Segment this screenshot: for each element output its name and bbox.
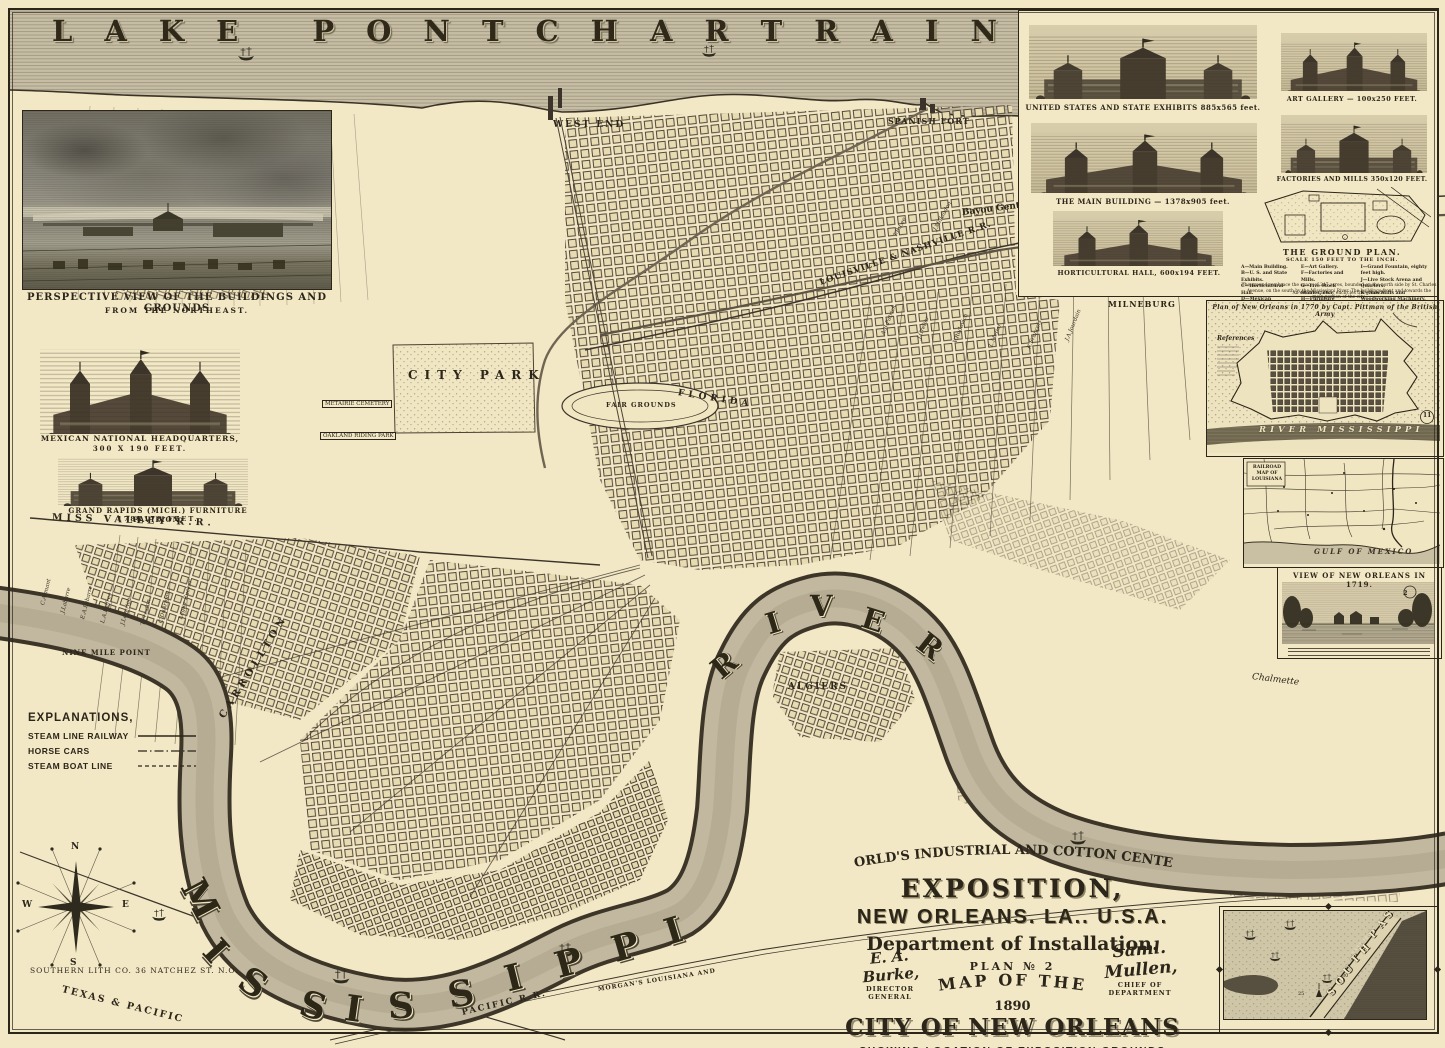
view-1719-art <box>1282 582 1434 644</box>
title-new-orleans-usa: NEW ORLEANS. LA.. U.S.A. <box>840 906 1185 929</box>
signature-director-general: E. A. Burke, DIRECTOR GENERAL <box>845 948 935 1001</box>
engraving-factories-mills <box>1281 115 1427 173</box>
signature-left-role: DIRECTOR GENERAL <box>845 985 935 1001</box>
title-map-of-the: MAP OF THE <box>937 973 1088 995</box>
inset-plan-1770: Plan of New Orleans in 1770 by Capt. Pit… <box>1206 300 1444 457</box>
engraving-us-state-exhibits <box>1029 25 1257 99</box>
view-1719-badge: 2 <box>1403 589 1408 597</box>
signature-right-name: Saml. Mullen, <box>1083 935 1196 984</box>
ground-plan-drawing <box>1259 187 1431 245</box>
label-city-park: CITY PARK <box>408 368 546 382</box>
legend-label: HORSE CARS <box>28 746 136 756</box>
ground-plan-title: THE GROUND PLAN. <box>1247 247 1437 257</box>
legend-explanations: EXPLANATIONS, STEAM LINE RAILWAY HORSE C… <box>28 712 198 773</box>
legend-label: STEAM BOAT LINE <box>28 761 136 771</box>
svg-text:MAP OF THE: MAP OF THE <box>937 973 1088 995</box>
inset-exhibit-panel: UNITED STATES AND STATE EXHIBITS 885x565… <box>1018 10 1439 297</box>
south-pass-depth-b: 25 <box>1298 991 1304 997</box>
engraving-horticultural-hall <box>1053 211 1223 266</box>
legend-row-steam-railway: STEAM LINE RAILWAY <box>28 728 198 743</box>
title-city-of-new-orleans: CITY OF NEW ORLEANS <box>840 1014 1185 1041</box>
perspective-engraving <box>22 110 332 290</box>
label-milneburg: MILNEBURG <box>1108 299 1176 309</box>
caption-factories-mills: FACTORIES AND MILLS 350x120 FEET. <box>1269 176 1435 183</box>
label-metairie-cemetery: METAIRIE CEMETERY <box>322 400 392 408</box>
mexican-hq-caption-line1: MEXICAN NATIONAL HEADQUARTERS, <box>40 434 240 443</box>
engraving-main-building <box>1031 123 1257 193</box>
inset-south-pass: SOUTH PASS EAST JETTY 30 25 <box>1219 906 1438 1033</box>
engraving-art-gallery <box>1281 33 1427 91</box>
legend-line-dash-dot <box>136 747 198 755</box>
caption-us-state-exhibits: UNITED STATES AND STATE EXHIBITS 885x565… <box>1019 103 1267 112</box>
title-exposition: EXPOSITION, <box>840 874 1185 903</box>
label-west-end: WEST END <box>553 120 625 130</box>
inset-grand-rapids: GRAND RAPIDS (MICH.) FURNITURE PAVILION,… <box>58 450 258 530</box>
compass-w: W <box>22 900 32 910</box>
svg-text:THE WORLD'S INDUSTRIAL AND COT: THE WORLD'S INDUSTRIAL AND COTTON CENTEN… <box>840 838 1174 871</box>
legend-row-steam-boat: STEAM BOAT LINE <box>28 758 198 773</box>
perspective-art <box>23 111 331 289</box>
inset-view-1719: VIEW OF NEW ORLEANS IN 1719. 2 <box>1277 567 1442 659</box>
south-pass-art <box>1224 911 1426 1019</box>
label-oakland-riding-park: OAKLAND RIDING PARK <box>320 432 396 440</box>
grand-rapids-engraving <box>58 450 248 506</box>
lake-pontchartrain-label: LAKE PONTCHARTRAIN <box>52 14 997 48</box>
inset-railroad-map: RAILROAD MAP OF LOUISIANA GULF OF MEXICO <box>1243 458 1444 568</box>
city-park-area <box>393 343 535 433</box>
plan-1770-badge: 11 <box>1423 412 1431 419</box>
plan-1770-river-label: RIVER MISSISSIPPI <box>1259 425 1423 435</box>
perspective-caption-line2: FROM THE NORTHEAST. <box>22 306 332 315</box>
label-algiers: ALGIERS <box>788 682 848 692</box>
mexican-hq-engraving <box>40 334 240 434</box>
view-1719-title: VIEW OF NEW ORLEANS IN 1719. <box>1278 571 1441 589</box>
south-pass-depth-a: 30 <box>1342 973 1348 979</box>
plan-1770-title: Plan of New Orleans in 1770 by Capt. Pit… <box>1207 304 1443 318</box>
legend-row-horse-cars: HORSE CARS <box>28 743 198 758</box>
legend-line-solid <box>136 732 198 740</box>
plan-1770-references: References <box>1217 335 1254 342</box>
view-1719-caption-lines <box>1288 646 1430 658</box>
label-fair-grounds: FAIR GROUNDS <box>606 401 677 409</box>
inset-perspective-view: PERSPECTIVE VIEW OF THE BUILDINGS AND GR… <box>22 110 332 322</box>
railroad-map-gulf-label: GULF OF MEXICO <box>1314 547 1413 556</box>
title-arch: THE WORLD'S INDUSTRIAL AND COTTON CENTEN… <box>840 838 1185 872</box>
ground-plan-note2: An electric railway encircles the ground… <box>1241 291 1437 297</box>
ground-plan-scale: SCALE 150 FEET TO THE INCH. <box>1247 257 1437 263</box>
signature-chief-department: Saml. Mullen, CHIEF OF DEPARTMENT <box>1085 940 1195 997</box>
caption-horticultural-hall: HORTICULTURAL HALL, 600x194 FEET. <box>1019 269 1259 277</box>
legend-line-dashed <box>136 762 198 770</box>
title-year: 1890 <box>840 999 1185 1014</box>
title-arch-text: THE WORLD'S INDUSTRIAL AND COTTON CENTEN… <box>840 838 1174 871</box>
label-nine-mile-point: NINE MILE POINT <box>62 648 151 657</box>
south-pass-frame: SOUTH PASS EAST JETTY 30 25 <box>1223 910 1427 1020</box>
label-spanish-fort: SPANISH FORT <box>888 116 970 126</box>
legend-label: STEAM LINE RAILWAY <box>28 731 136 741</box>
compass-e: E <box>122 900 129 910</box>
caption-art-gallery: ART GALLERY — 100x250 FEET. <box>1269 95 1435 103</box>
signature-left-name: E. A. Burke, <box>844 944 937 988</box>
caption-main-building: THE MAIN BUILDING — 1378x905 feet. <box>1019 197 1267 206</box>
imprint: SOUTHERN LITH CO. 36 NATCHEZ ST. N.O. <box>30 966 239 975</box>
compass-rose <box>16 847 135 966</box>
inset-mexican-hq: MEXICAN NATIONAL HEADQUARTERS, 300 X 190… <box>40 334 240 460</box>
railroad-map-title: RAILROAD MAP OF LOUISIANA <box>1250 465 1284 483</box>
legend-heading: EXPLANATIONS, <box>28 712 198 724</box>
grand-rapids-caption-line2: 178X178 FEET. <box>58 515 258 523</box>
map-canvas: LAKE PONTCHARTRAIN MISSISSIPPI RIVER N W… <box>0 0 1445 1048</box>
compass-n: N <box>71 842 79 852</box>
